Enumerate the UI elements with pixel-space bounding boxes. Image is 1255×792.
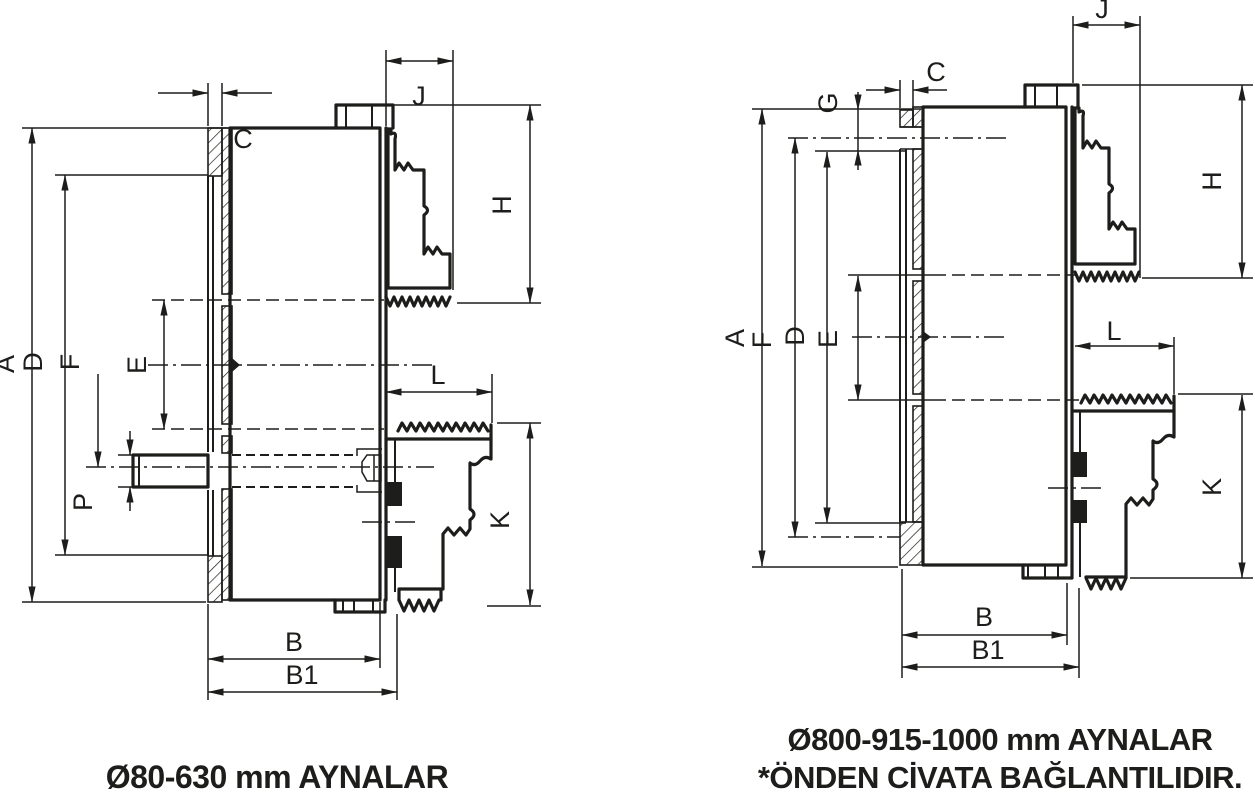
dim-label-L-right: L bbox=[1106, 316, 1121, 346]
left-caption: Ø80-630 mm AYNALAR bbox=[106, 759, 449, 792]
backplate-flange-top-section bbox=[900, 110, 913, 127]
dim-label-H-left: H bbox=[487, 195, 517, 215]
dim-label-C-right: C bbox=[926, 57, 946, 87]
bottom-foot-detail bbox=[343, 600, 373, 612]
left-chuck-drawing: A D F E P C J H L K bbox=[0, 50, 541, 792]
right-chuck-drawing: A F D E G C J H L K bbox=[720, 0, 1253, 792]
bottom-jaw-serration bbox=[398, 423, 491, 439]
backplate-flange-top-section bbox=[208, 128, 222, 176]
dim-label-J-right: J bbox=[1095, 0, 1109, 24]
top-lug bbox=[336, 105, 393, 128]
dim-label-G-right: G bbox=[813, 92, 843, 113]
dim-label-H-right: H bbox=[1197, 171, 1227, 191]
backplate-flange-bottom-section bbox=[900, 522, 923, 565]
bottom-jaw-profile bbox=[386, 439, 491, 600]
bottom-jaw-profile bbox=[1074, 411, 1174, 577]
dim-label-B-left: B bbox=[285, 627, 303, 657]
rear-wall-section bbox=[222, 128, 232, 294]
dim-label-P-left: P bbox=[68, 493, 98, 511]
rear-wall-section bbox=[222, 489, 232, 600]
dim-label-A-left: A bbox=[0, 355, 20, 373]
dim-label-D-left: D bbox=[18, 352, 48, 372]
dim-label-E-right: E bbox=[813, 330, 843, 348]
chuck-body-section bbox=[230, 128, 380, 600]
technical-drawing-page: A D F E P C J H L K bbox=[0, 0, 1255, 792]
dim-label-F-right: F bbox=[747, 332, 777, 349]
dim-label-L-left: L bbox=[430, 360, 445, 390]
backplate-rim bbox=[208, 176, 213, 556]
dim-label-B1-left: B1 bbox=[285, 660, 318, 690]
dim-ext-C-left bbox=[208, 83, 222, 126]
bottom-foot bbox=[1023, 565, 1072, 578]
top-jaw-serration bbox=[386, 297, 450, 306]
rear-wall-section bbox=[913, 149, 923, 269]
rear-wall-section bbox=[913, 406, 923, 522]
chuck-body-section bbox=[923, 107, 1066, 565]
top-lug bbox=[1025, 85, 1078, 107]
bolt-hidden-lines bbox=[232, 455, 357, 487]
dim-label-K-left: K bbox=[485, 511, 515, 529]
right-caption-line2: *ÖNDEN CİVATA BAĞLANTILIDIR. bbox=[758, 760, 1242, 792]
bottom-foot-detail bbox=[1028, 565, 1058, 578]
bottom-jaw-foot-serration bbox=[1086, 578, 1126, 589]
jaw-tenon-block bbox=[386, 536, 402, 568]
jaw-tenon-block bbox=[1072, 452, 1087, 477]
rear-wall-section bbox=[913, 107, 923, 127]
dim-ext-H-left bbox=[394, 105, 541, 303]
dim-label-K-right: K bbox=[1197, 478, 1227, 496]
dim-label-E-left: E bbox=[122, 356, 152, 374]
dim-label-F-left: F bbox=[55, 354, 85, 371]
technical-drawing-canvas: A D F E P C J H L K bbox=[0, 0, 1255, 792]
bolt-head-hex bbox=[362, 455, 381, 481]
top-jaw-profile bbox=[386, 129, 450, 288]
right-caption-line1: Ø800-915-1000 mm AYNALAR bbox=[787, 722, 1212, 757]
jaw-tenon-block bbox=[386, 482, 402, 506]
dim-label-J-left: J bbox=[412, 81, 426, 111]
mounting-bolt bbox=[133, 455, 208, 487]
backplate-rim bbox=[900, 149, 906, 522]
bottom-jaw-serration bbox=[1081, 395, 1174, 411]
dim-label-C-left: C bbox=[233, 124, 253, 154]
bottom-jaw-foot-serration bbox=[399, 600, 439, 611]
dim-ext-K-right bbox=[1130, 394, 1253, 578]
dim-label-B-right: B bbox=[975, 602, 993, 632]
dim-label-D-right: D bbox=[780, 326, 810, 346]
dim-label-B1-right: B1 bbox=[971, 635, 1004, 665]
top-jaw-profile bbox=[1074, 108, 1135, 264]
rear-wall-section bbox=[222, 436, 232, 453]
dim-label-A-right: A bbox=[720, 329, 750, 347]
top-lug-detail bbox=[1035, 85, 1057, 107]
top-jaw-serration bbox=[1075, 272, 1139, 281]
jaw-tenon-block bbox=[1072, 500, 1087, 523]
top-lug-detail bbox=[346, 105, 372, 128]
backplate-flange-bottom-section bbox=[208, 556, 222, 602]
